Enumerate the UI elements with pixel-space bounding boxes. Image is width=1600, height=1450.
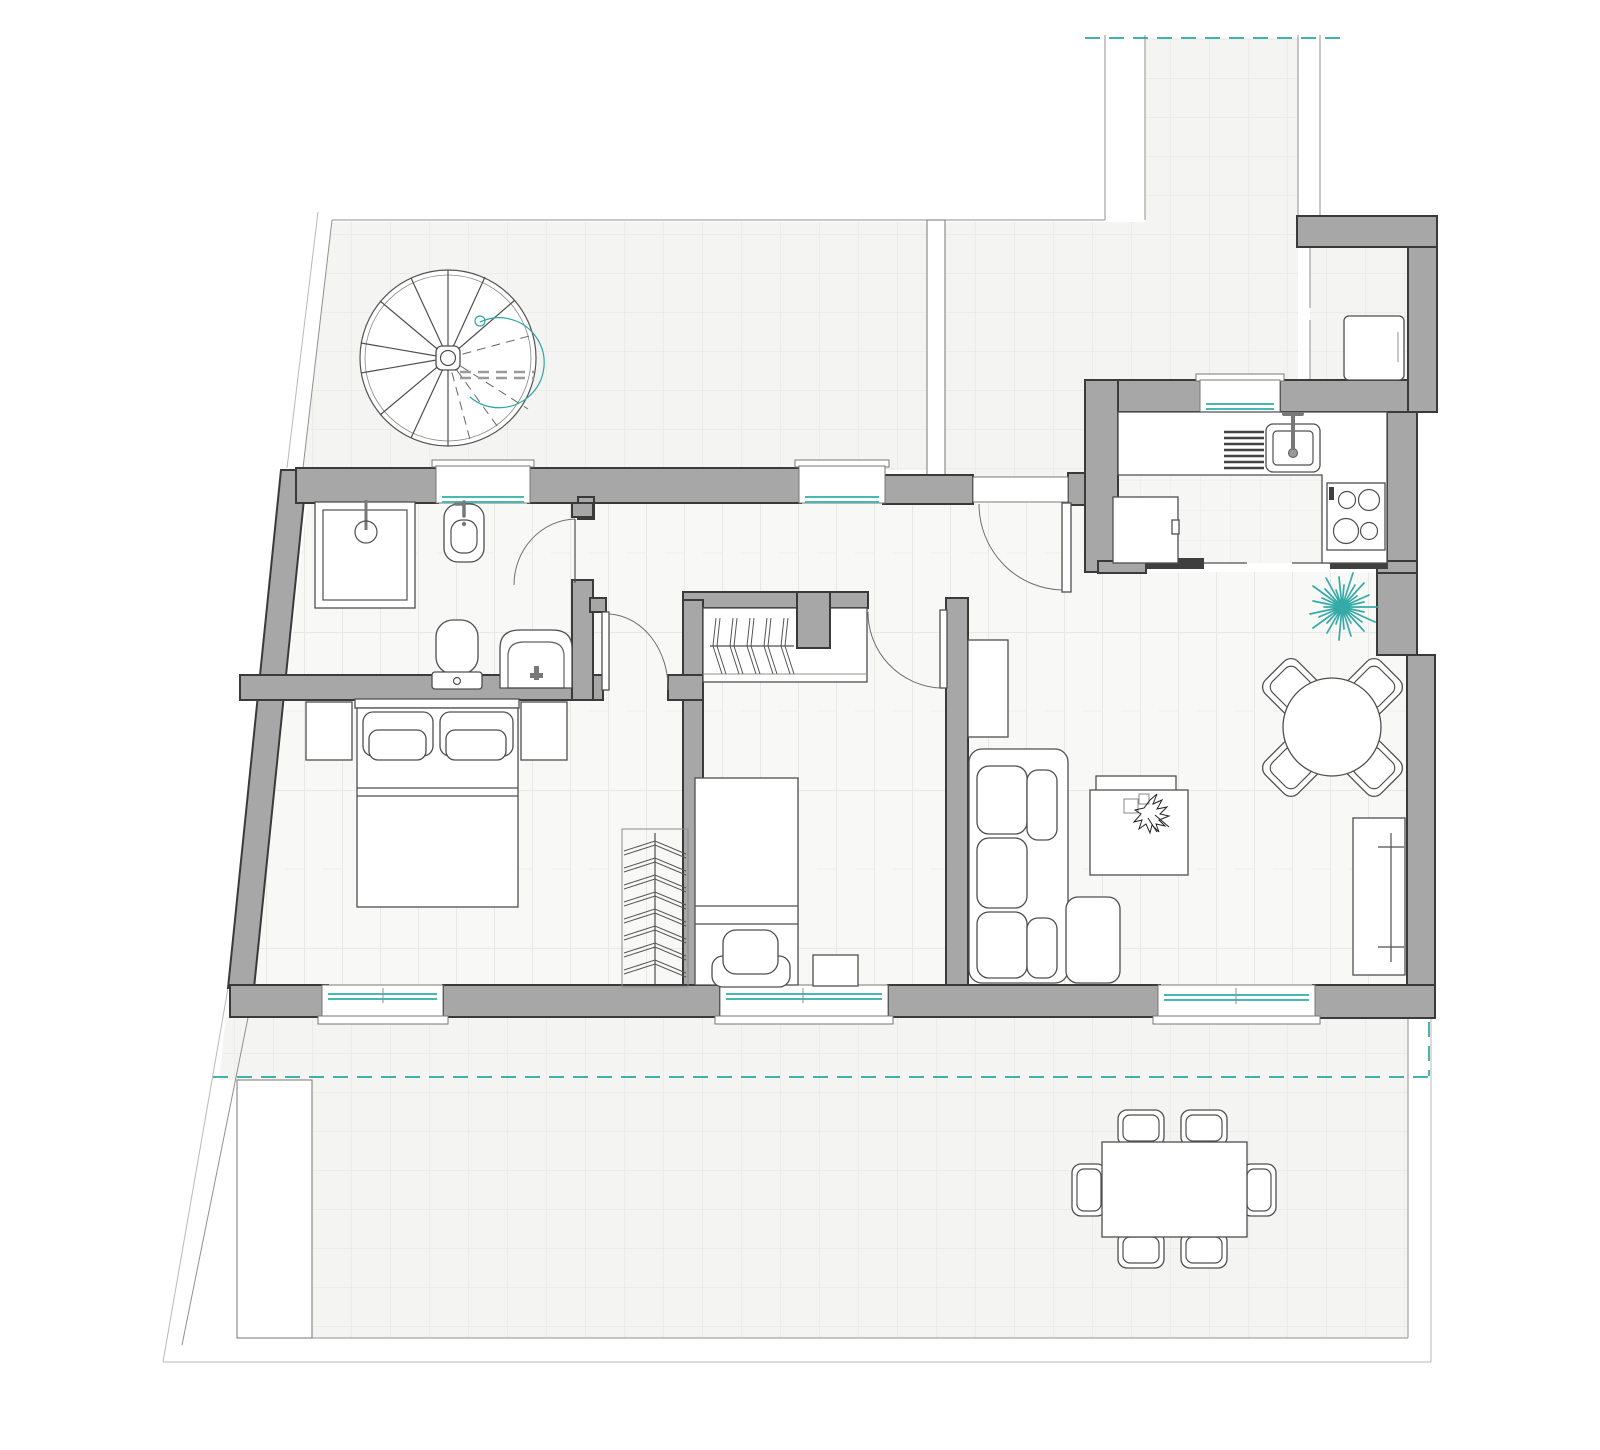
wall-bottom-corner bbox=[1313, 985, 1435, 1018]
coffee-table bbox=[1090, 776, 1188, 875]
door-hinge-block bbox=[590, 598, 606, 612]
wall-bottom-1 bbox=[230, 985, 328, 1017]
planter bbox=[237, 1080, 312, 1338]
outdoor-dining-table bbox=[1102, 1142, 1247, 1237]
mid-terrace-floor bbox=[945, 222, 1298, 382]
wall-east-niche bbox=[1408, 247, 1437, 412]
wall-bathroom-east-top bbox=[572, 503, 593, 517]
refrigerator bbox=[1113, 497, 1178, 563]
washbasin bbox=[500, 630, 572, 688]
living-window bbox=[1153, 985, 1320, 1024]
hall-window bbox=[795, 460, 889, 503]
washing-machine bbox=[1344, 316, 1404, 380]
side-table bbox=[813, 955, 858, 986]
floor-plan-drawing bbox=[0, 0, 1600, 1450]
cooktop bbox=[1327, 483, 1385, 550]
radiator-console bbox=[1353, 818, 1405, 975]
shower bbox=[315, 500, 415, 608]
floor-plan-canvas bbox=[0, 0, 1600, 1450]
bedroom1-window bbox=[318, 985, 448, 1024]
wall-bottom-3 bbox=[888, 985, 1160, 1017]
bedroom2-window bbox=[715, 985, 893, 1024]
wall-east-step bbox=[1377, 572, 1417, 655]
tv-cabinet bbox=[968, 640, 1008, 737]
wall-east-living bbox=[1407, 655, 1435, 1018]
wall-niche-top bbox=[1297, 216, 1437, 247]
mid-terrace-floor-2 bbox=[945, 382, 1085, 478]
toilet bbox=[432, 620, 482, 689]
kitchen-window bbox=[1196, 374, 1284, 413]
wall-bedroom1-stub bbox=[668, 675, 703, 700]
corridor-floor bbox=[1145, 38, 1298, 222]
wall-closet-top bbox=[683, 592, 868, 608]
terrace-parapet bbox=[927, 220, 945, 478]
utility-niche bbox=[1344, 316, 1404, 380]
dish-drainer bbox=[1224, 432, 1264, 468]
wall-bottom-2 bbox=[443, 985, 720, 1017]
wall-top-hall bbox=[528, 468, 801, 503]
wall-top-living bbox=[883, 475, 973, 504]
wall-east-kitchen bbox=[1387, 412, 1417, 572]
closet-notch-wall bbox=[797, 592, 830, 648]
bedroom1-door-leaf bbox=[602, 612, 609, 690]
wall-top-bathroom bbox=[296, 468, 438, 503]
nightstand-right bbox=[521, 702, 567, 760]
wall-kitchen-north-right bbox=[1280, 380, 1408, 412]
bidet bbox=[444, 502, 484, 562]
bedroom2-door-leaf bbox=[940, 610, 947, 688]
entrance-door-leaf bbox=[1062, 503, 1071, 592]
double-bed bbox=[355, 699, 519, 907]
bathroom-window bbox=[432, 460, 534, 503]
nightstand-left bbox=[306, 702, 352, 760]
wall-divider-living bbox=[946, 598, 968, 985]
